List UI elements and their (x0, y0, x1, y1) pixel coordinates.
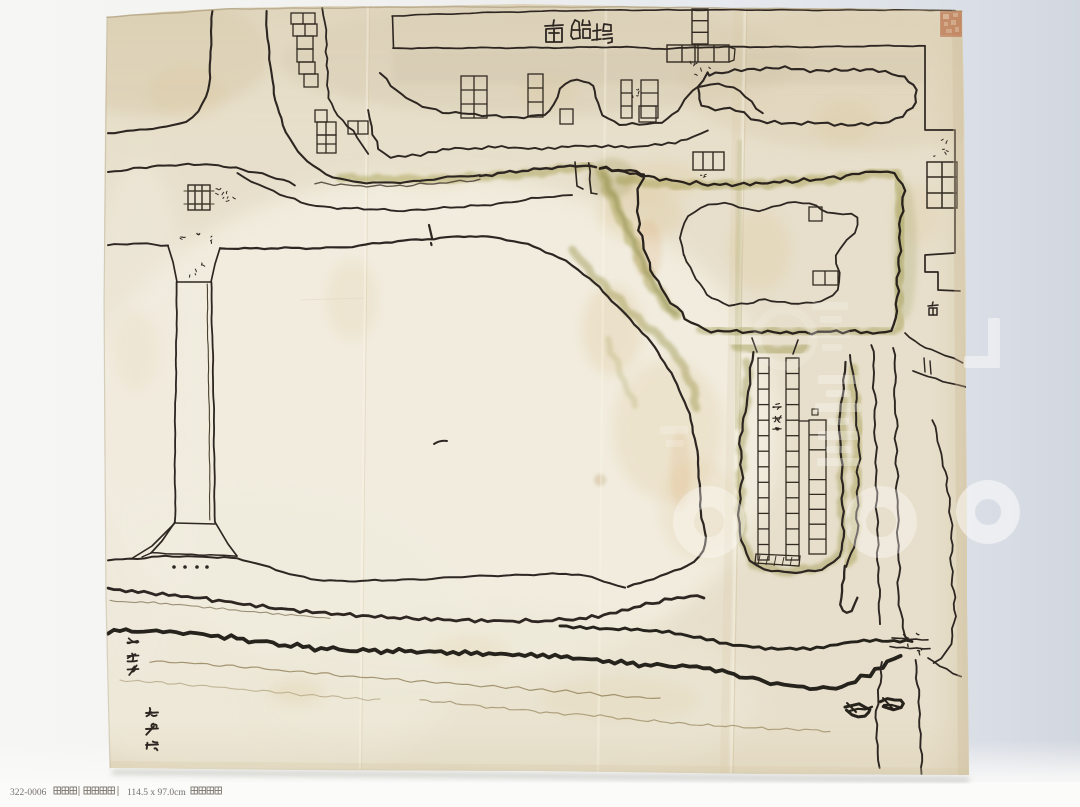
svg-text:322-0006: 322-0006 (10, 788, 47, 798)
svg-text:114.5 x 97.0cm: 114.5 x 97.0cm (127, 788, 186, 798)
